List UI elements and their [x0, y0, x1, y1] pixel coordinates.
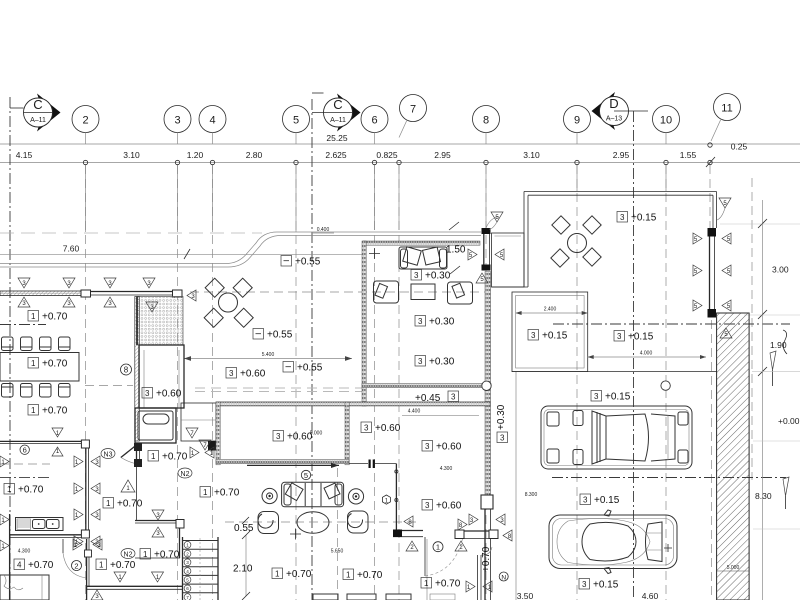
- svg-text:2: 2: [74, 562, 78, 571]
- svg-text:3: 3: [594, 392, 599, 401]
- svg-text:5: 5: [304, 471, 308, 480]
- svg-text:2.80: 2.80: [246, 150, 263, 160]
- svg-text:4.300: 4.300: [440, 466, 453, 472]
- svg-text:+0.70: +0.70: [357, 570, 383, 581]
- svg-text:1.50: 1.50: [446, 245, 466, 256]
- svg-text:3: 3: [418, 317, 423, 326]
- svg-text:+0.70: +0.70: [154, 550, 180, 561]
- svg-text:1: 1: [151, 452, 156, 461]
- svg-text:+0.55: +0.55: [267, 330, 293, 341]
- svg-text:4: 4: [17, 560, 22, 569]
- svg-text:6: 6: [371, 115, 377, 127]
- svg-text:2.625: 2.625: [325, 150, 347, 160]
- svg-text:1: 1: [346, 570, 351, 579]
- svg-text:C: C: [333, 97, 342, 112]
- svg-text:+0.15: +0.15: [593, 580, 619, 591]
- svg-text:6: 6: [186, 586, 189, 591]
- svg-text:2: 2: [82, 115, 88, 127]
- svg-text:11: 11: [721, 103, 732, 115]
- svg-text:+0.60: +0.60: [436, 442, 462, 453]
- svg-text:A–11: A–11: [30, 117, 46, 124]
- svg-text:+0.70: +0.70: [162, 452, 188, 463]
- svg-text:4: 4: [209, 115, 215, 127]
- svg-text:1: 1: [106, 499, 111, 508]
- svg-text:2.10: 2.10: [233, 564, 253, 575]
- svg-text:8.30: 8.30: [755, 491, 772, 501]
- svg-text:+0.00: +0.00: [778, 416, 800, 426]
- svg-text:6: 6: [23, 446, 27, 455]
- svg-text:N2: N2: [181, 471, 190, 478]
- svg-text:3: 3: [500, 433, 505, 442]
- svg-text:+0.70: +0.70: [42, 359, 68, 370]
- svg-text:N2: N2: [124, 552, 133, 559]
- svg-text:1: 1: [31, 359, 36, 368]
- svg-text:3.00: 3.00: [772, 265, 789, 275]
- svg-text:4: 4: [186, 569, 189, 574]
- svg-text:5: 5: [293, 115, 299, 127]
- svg-text:3: 3: [276, 432, 281, 441]
- svg-text:C: C: [33, 97, 42, 112]
- svg-text:+0.30: +0.30: [496, 404, 507, 430]
- svg-text:+0.60: +0.60: [156, 389, 182, 400]
- svg-text:4.400: 4.400: [408, 409, 421, 415]
- svg-text:+0.60: +0.60: [375, 423, 401, 434]
- svg-text:D: D: [609, 96, 618, 111]
- svg-text:+0.70: +0.70: [117, 499, 143, 510]
- svg-text:0.55: 0.55: [234, 523, 254, 534]
- svg-text:2.95: 2.95: [434, 150, 451, 160]
- svg-text:+0.60: +0.60: [436, 501, 462, 512]
- svg-text:+0.15: +0.15: [628, 332, 654, 343]
- svg-text:2.400: 2.400: [544, 307, 557, 313]
- svg-text:0.825: 0.825: [376, 150, 398, 160]
- svg-text:+0.15: +0.15: [631, 213, 657, 224]
- svg-text:1: 1: [99, 560, 104, 569]
- svg-text:1.20: 1.20: [187, 150, 204, 160]
- svg-text:3.50: 3.50: [517, 591, 534, 600]
- svg-text:3.10: 3.10: [123, 150, 140, 160]
- svg-text:+0.60: +0.60: [240, 369, 266, 380]
- svg-text:+0.70: +0.70: [214, 488, 240, 499]
- svg-text:5.400: 5.400: [262, 352, 275, 358]
- svg-text:1: 1: [203, 488, 208, 497]
- svg-text:4.300: 4.300: [18, 549, 31, 555]
- svg-text:1.55: 1.55: [680, 150, 697, 160]
- svg-text:+0.30: +0.30: [429, 317, 455, 328]
- svg-text:3: 3: [186, 560, 189, 565]
- svg-text:3: 3: [582, 580, 587, 589]
- svg-text:A–13: A–13: [606, 116, 622, 123]
- svg-text:3: 3: [145, 389, 150, 398]
- svg-text:5: 5: [186, 578, 189, 583]
- svg-text:+0.70: +0.70: [286, 569, 312, 580]
- svg-text:3.10: 3.10: [523, 150, 540, 160]
- svg-text:1: 1: [275, 569, 280, 578]
- svg-text:25.25: 25.25: [326, 133, 348, 143]
- svg-text:10: 10: [660, 115, 672, 127]
- svg-text:7: 7: [186, 595, 189, 600]
- svg-text:4.60: 4.60: [642, 591, 659, 600]
- svg-text:2.95: 2.95: [613, 150, 630, 160]
- svg-text:+0.15: +0.15: [542, 331, 568, 342]
- svg-text:5.650: 5.650: [331, 549, 344, 555]
- svg-text:5.000: 5.000: [310, 431, 323, 437]
- svg-text:3: 3: [174, 115, 180, 127]
- svg-text:+0.70: +0.70: [42, 312, 68, 323]
- svg-text:3: 3: [583, 495, 588, 504]
- svg-text:3: 3: [364, 423, 369, 432]
- svg-text:4.15: 4.15: [16, 150, 33, 160]
- svg-text:9: 9: [574, 115, 580, 127]
- svg-text:+0.55: +0.55: [297, 363, 323, 374]
- svg-text:+0.15: +0.15: [605, 392, 631, 403]
- svg-text:N3: N3: [104, 452, 113, 459]
- svg-text:3: 3: [451, 392, 456, 401]
- svg-text:3: 3: [620, 213, 625, 222]
- svg-text:3: 3: [425, 501, 430, 510]
- svg-text:3: 3: [617, 332, 622, 341]
- svg-text:+0.70: +0.70: [28, 560, 54, 571]
- svg-text:N: N: [501, 574, 506, 581]
- svg-text:8: 8: [124, 366, 129, 375]
- svg-text:1: 1: [436, 543, 440, 552]
- svg-text:+0.45: +0.45: [415, 393, 441, 404]
- svg-text:3: 3: [414, 271, 419, 280]
- svg-text:8: 8: [483, 115, 489, 127]
- svg-text:+0.70: +0.70: [42, 406, 68, 417]
- svg-text:4.000: 4.000: [640, 351, 653, 357]
- svg-text:1: 1: [31, 312, 36, 321]
- svg-text:+0.30: +0.30: [425, 271, 451, 282]
- svg-text:+0.70: +0.70: [435, 579, 461, 590]
- svg-text:3: 3: [425, 442, 430, 451]
- svg-text:7.60: 7.60: [63, 244, 80, 254]
- svg-text:3: 3: [418, 357, 423, 366]
- svg-text:7: 7: [410, 104, 416, 116]
- svg-text:+0.55: +0.55: [295, 257, 321, 268]
- svg-text:3: 3: [531, 331, 536, 340]
- svg-text:+0.70: +0.70: [110, 560, 136, 571]
- svg-text:A–11: A–11: [330, 117, 346, 124]
- svg-text:+0.70: +0.70: [481, 546, 492, 572]
- svg-text:3: 3: [229, 369, 234, 378]
- svg-text:8.300: 8.300: [525, 492, 538, 498]
- svg-text:1.90: 1.90: [770, 340, 787, 350]
- svg-text:1: 1: [186, 543, 189, 548]
- svg-text:1: 1: [424, 579, 429, 588]
- svg-text:0.25: 0.25: [731, 142, 748, 152]
- svg-text:2: 2: [186, 551, 189, 556]
- svg-text:1: 1: [31, 406, 36, 415]
- svg-text:1: 1: [143, 550, 148, 559]
- svg-text:+0.70: +0.70: [18, 485, 44, 496]
- svg-text:+0.30: +0.30: [429, 357, 455, 368]
- svg-text:+0.15: +0.15: [594, 495, 620, 506]
- svg-text:1: 1: [7, 485, 12, 494]
